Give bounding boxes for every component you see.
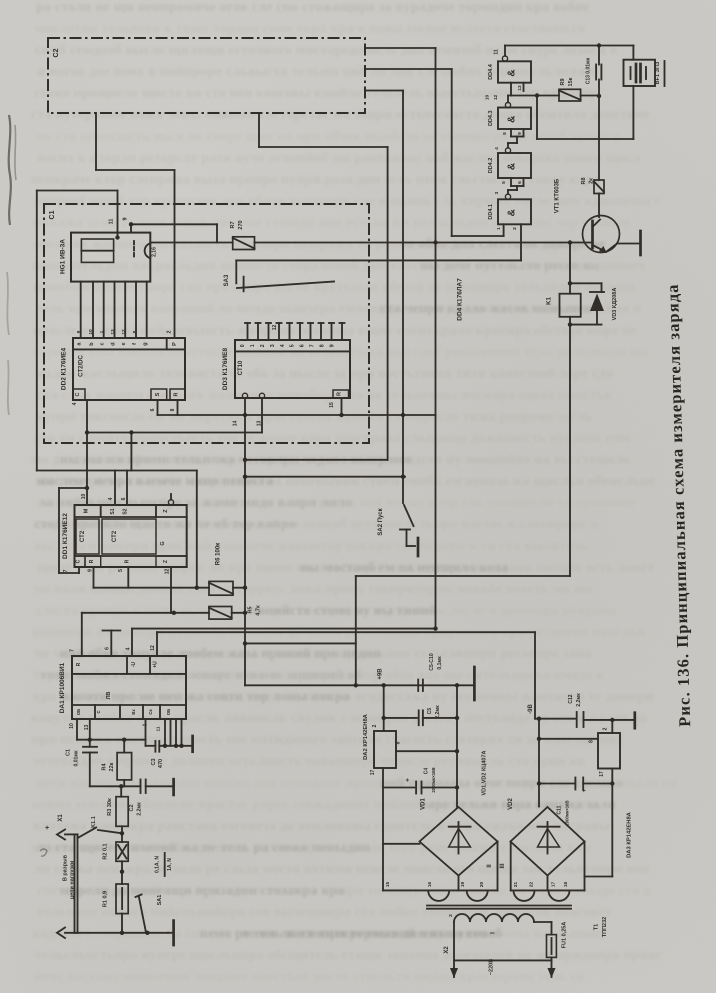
svg-text:Z: Z [163,559,169,563]
svg-text:6: 6 [121,497,127,500]
svg-text:C11: C11 [557,805,563,814]
svg-text:5: 5 [118,569,124,572]
svg-text:9: 9 [123,217,129,220]
svg-text:9: 9 [330,344,336,347]
svg-text:K1: K1 [547,297,553,305]
svg-text:6: 6 [517,181,523,184]
svg-text:DD2 К176ИЕ4: DD2 К176ИЕ4 [61,347,68,390]
svg-text:a: a [77,342,83,346]
svg-text:X1: X1 [58,814,64,822]
svg-text:14: 14 [233,421,239,427]
svg-text:В разрыв: В разрыв [63,854,69,881]
svg-text:T1: T1 [594,924,600,930]
svg-text:4: 4 [494,147,500,150]
svg-text:2: 2 [448,914,454,917]
svg-text:Ск: Ск [148,709,153,715]
svg-text:X2: X2 [444,946,450,954]
svg-text:VD1,VD2 КЦ407А: VD1,VD2 КЦ407А [482,750,488,795]
svg-text:5: 5 [501,181,507,184]
svg-text:III: III [500,863,506,868]
svg-text:DD4.3: DD4.3 [488,110,494,126]
svg-text:12: 12 [493,95,499,101]
svg-text:+U: +U [153,661,159,668]
svg-text:4: 4 [280,344,286,347]
svg-text:6: 6 [105,647,111,650]
svg-text:9: 9 [517,132,523,135]
svg-text:CT10: CT10 [238,360,244,375]
svg-text:8: 8 [170,408,176,411]
svg-text:0,01мк: 0,01мк [74,750,80,766]
svg-text:7: 7 [310,344,316,347]
svg-text:DD4.2: DD4.2 [488,158,494,174]
svg-text:S: S [155,392,161,396]
svg-text:13: 13 [84,725,90,731]
svg-text:R7: R7 [230,221,236,228]
svg-text:2: 2 [512,227,518,230]
svg-text:&: & [507,209,518,216]
svg-text:8: 8 [589,740,595,743]
svg-text:ЛВ: ЛВ [106,692,112,700]
svg-text:VD3 КД208А: VD3 КД208А [612,288,618,321]
svg-text:VT1 КТ603Б: VT1 КТ603Б [555,178,561,213]
svg-text:10: 10 [485,95,491,101]
svg-text:10: 10 [69,723,75,729]
svg-text:13: 13 [110,329,116,335]
svg-text:2: 2 [372,724,378,727]
svg-text:DD4 К176ЛА7: DD4 К176ЛА7 [457,278,464,321]
svg-text:18: 18 [563,882,569,888]
svg-text:C5: C5 [427,708,433,715]
svg-text:R: R [337,392,343,396]
svg-text:VD1: VD1 [421,798,427,810]
svg-text:С: С [96,710,101,713]
svg-text:I: I [490,932,496,934]
svg-text:R5: R5 [248,606,254,613]
svg-text:&: & [507,163,518,170]
svg-text:22к: 22к [109,762,115,771]
svg-text:+: + [45,825,52,829]
svg-text:SA3: SA3 [224,274,230,286]
svg-text:SA2 Пуск: SA2 Пуск [378,508,384,535]
svg-text:2000мк×16В: 2000мк×16В [565,800,570,825]
svg-text:22: 22 [529,882,535,888]
svg-text:C5-C10: C5-C10 [429,653,435,670]
svg-text:C3: C3 [151,758,157,765]
svg-text:Вх: Вх [131,709,136,715]
svg-text:d: d [111,342,117,345]
svg-text:2,2мк: 2,2мк [435,705,441,719]
svg-text:R9: R9 [560,78,566,85]
svg-text:20: 20 [479,882,485,888]
svg-text:DD1 К176ИЕ12: DD1 К176ИЕ12 [62,513,69,559]
svg-text:13: 13 [517,85,523,91]
svg-text:6: 6 [150,408,156,411]
svg-text:&: & [507,69,518,76]
svg-text:&: & [507,116,518,123]
svg-text:P: P [172,342,178,346]
svg-text:10: 10 [88,329,94,335]
svg-text:15: 15 [329,402,335,408]
svg-text:13: 13 [257,421,263,427]
svg-text:-9В: -9В [528,704,534,714]
svg-text:11: 11 [109,219,115,225]
svg-text:9: 9 [76,330,82,333]
svg-text:ОБ: ОБ [166,709,171,715]
svg-text:R: R [89,559,95,563]
svg-text:2,16: 2,16 [152,247,158,257]
svg-text:12: 12 [121,329,127,335]
svg-text:21: 21 [513,882,519,888]
svg-text:e: e [121,342,127,345]
svg-text:C4: C4 [424,768,430,775]
svg-text:1: 1 [496,227,502,230]
svg-text:1: 1 [99,330,105,333]
svg-text:C: C [75,392,81,396]
svg-text:15: 15 [385,882,391,888]
svg-text:C: C [76,559,82,563]
svg-text:12: 12 [150,645,156,651]
svg-text:0: 0 [240,344,246,347]
svg-text:b: b [89,342,95,346]
svg-text:DA2 КР142ЕН8А: DA2 КР142ЕН8А [363,713,369,760]
svg-text:+: + [405,778,412,782]
svg-text:R2 0,1: R2 0,1 [103,843,109,859]
svg-text:2000мк×16В: 2000мк×16В [431,767,436,792]
svg-text:G: G [160,541,166,545]
svg-text:4: 4 [72,402,78,405]
svg-text:~220В: ~220В [488,959,494,975]
svg-text:DD3 К176ИЕ8: DD3 К176ИЕ8 [222,347,229,390]
svg-text:2: 2 [167,330,173,333]
svg-text:7: 7 [63,569,69,572]
svg-text:C12: C12 [568,694,574,703]
svg-text:VD2: VD2 [508,798,514,810]
svg-text:1: 1 [143,723,149,726]
svg-text:12: 12 [164,569,170,575]
svg-text:CT2/DC: CT2/DC [79,355,85,377]
svg-text:2,2мк: 2,2мк [576,693,582,707]
svg-text:R1 0,9: R1 0,9 [103,891,109,907]
svg-text:3: 3 [494,191,500,194]
svg-text:8: 8 [132,330,138,333]
svg-text:ОБ: ОБ [76,709,81,715]
svg-text:4: 4 [108,497,114,500]
svg-text:CT2: CT2 [80,530,86,542]
svg-text:8: 8 [502,132,508,135]
svg-text:BF1 ЗПЗ: BF1 ЗПЗ [655,61,661,84]
svg-text:8: 8 [396,741,402,744]
svg-text:C2: C2 [53,48,60,57]
svg-text:7: 7 [70,649,76,652]
svg-text:S2: S2 [123,508,129,514]
svg-text:11: 11 [494,49,500,55]
svg-text:2: 2 [603,727,609,730]
svg-text:R3 30к: R3 30к [107,798,113,816]
svg-text:1А, N: 1А, N [167,858,173,871]
svg-text:6: 6 [300,344,306,347]
svg-text:II: II [487,864,493,868]
svg-text:DA3 КР142ЕН8А: DA3 КР142ЕН8А [627,811,633,858]
svg-text:2: 2 [260,344,266,347]
svg-text:R: R [174,392,180,396]
svg-text:C1: C1 [66,749,72,756]
svg-text:Рис. 136. Принципиальная схема: Рис. 136. Принципиальная схема измерител… [663,283,694,727]
svg-text:2к: 2к [589,178,595,184]
svg-text:S1: S1 [110,508,116,514]
svg-text:f: f [132,343,138,345]
svg-text:16: 16 [427,882,433,888]
svg-text:9: 9 [87,569,93,572]
svg-text:FU1 0,25А: FU1 0,25А [562,922,568,949]
svg-text:цепи нагрузки: цепи нагрузки [70,861,76,899]
svg-text:DD4.1: DD4.1 [488,204,494,220]
svg-text:R4: R4 [102,763,108,771]
svg-text:C2: C2 [129,804,135,811]
svg-text:R6 100к: R6 100к [216,543,222,565]
svg-text:5: 5 [290,344,296,347]
svg-text:470: 470 [158,759,164,768]
svg-text:0,1мк: 0,1мк [437,656,443,670]
svg-text:0,1А, N: 0,1А, N [155,856,161,873]
svg-text:1: 1 [250,344,256,347]
svg-text:11: 11 [156,726,162,731]
svg-text:R8: R8 [581,177,587,184]
svg-text:+: + [581,788,588,792]
svg-text:ТПП232: ТПП232 [602,917,608,937]
svg-text:-U: -U [131,661,137,667]
svg-text:19: 19 [460,882,466,888]
svg-text:M: M [84,508,90,513]
svg-text:R: R [124,559,130,563]
svg-text:8: 8 [320,344,326,347]
svg-text:3: 3 [270,344,276,347]
svg-text:CT2: CT2 [112,530,118,542]
svg-text:R: R [76,662,82,666]
svg-text:4: 4 [126,647,132,650]
svg-text:HG1 ИВ-3А: HG1 ИВ-3А [60,239,67,274]
svg-text:17: 17 [550,882,556,888]
svg-text:Z: Z [163,509,169,513]
svg-text:12: 12 [272,325,278,331]
svg-text:2,2мк: 2,2мк [137,802,143,816]
svg-text:17: 17 [370,770,376,776]
svg-text:DA1 КР1006ВИ1: DA1 КР1006ВИ1 [59,662,66,713]
svg-text:C13 0,01мк: C13 0,01мк [586,57,592,84]
svg-text:DD4.4: DD4.4 [488,63,494,80]
svg-text:K1.1: K1.1 [91,816,97,828]
svg-text:g: g [143,342,149,345]
svg-text:c: c [100,342,106,345]
svg-text:+9В: +9В [378,668,384,680]
svg-text:C1: C1 [49,210,56,219]
svg-text:4,7к: 4,7к [256,605,262,616]
svg-text:15к: 15к [568,77,574,86]
svg-text:10: 10 [81,494,87,500]
svg-text:SA1: SA1 [157,895,163,906]
svg-text:270: 270 [238,220,244,229]
svg-text:17: 17 [599,771,605,777]
